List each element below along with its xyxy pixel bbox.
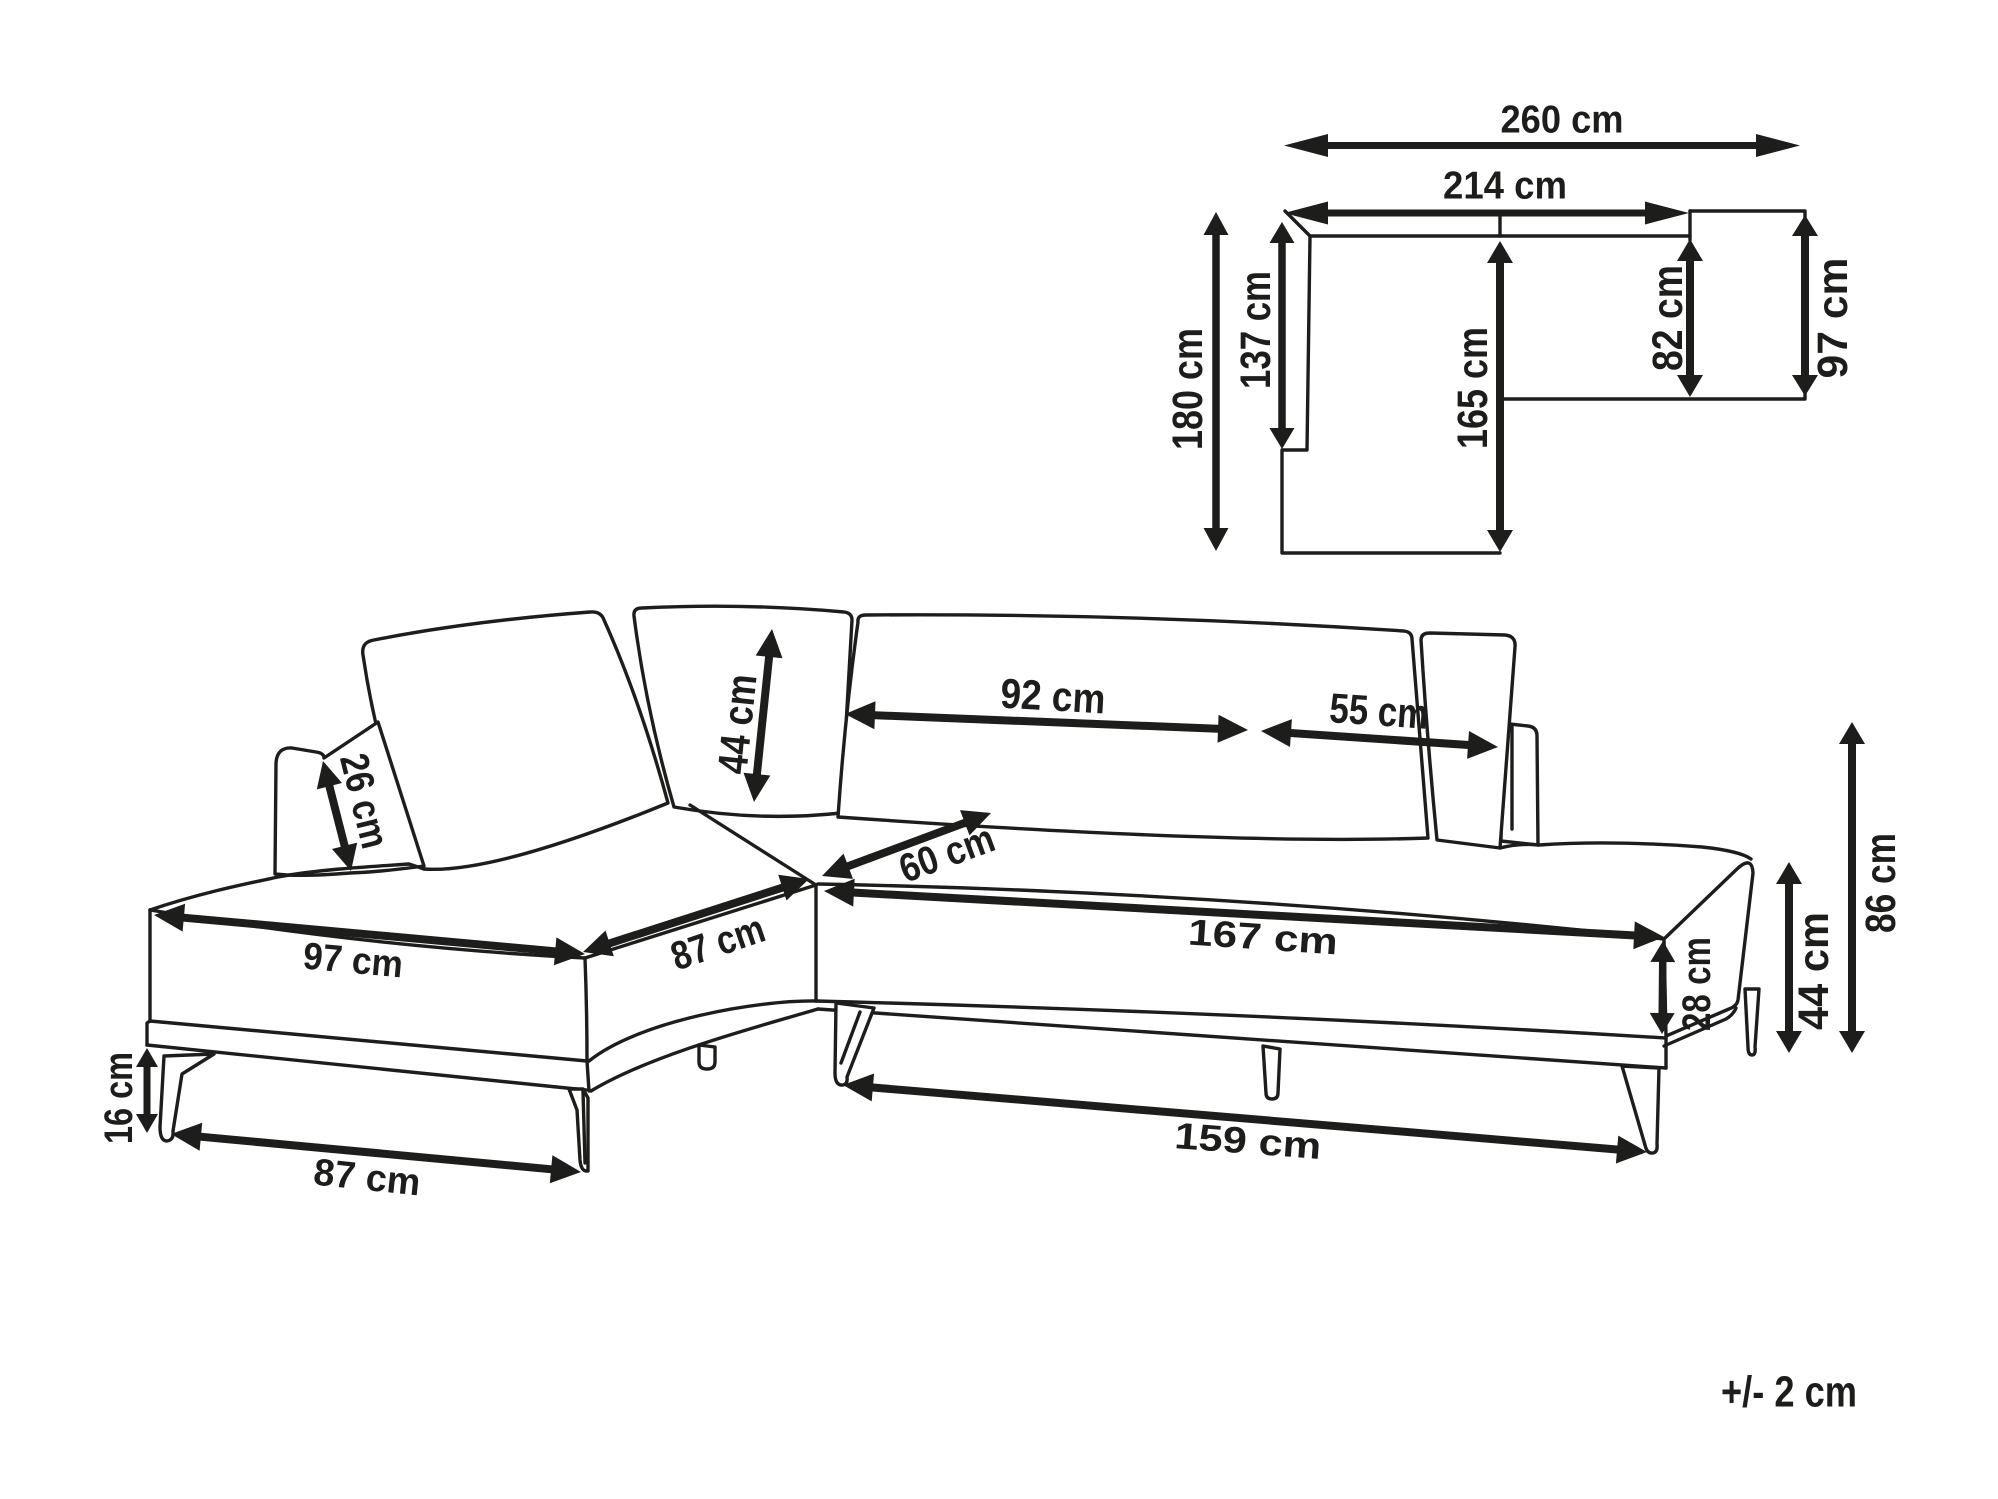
svg-text:44 cm: 44 cm <box>1790 912 1838 1030</box>
svg-text:97 cm: 97 cm <box>1809 258 1857 379</box>
svg-text:55 cm: 55 cm <box>1328 684 1430 738</box>
svg-text:214 cm: 214 cm <box>1443 165 1567 208</box>
svg-text:+/- 2 cm: +/- 2 cm <box>1721 1368 1857 1417</box>
svg-text:86 cm: 86 cm <box>1857 833 1905 933</box>
svg-text:165 cm: 165 cm <box>1449 327 1497 449</box>
svg-text:82 cm: 82 cm <box>1644 265 1692 371</box>
svg-text:180 cm: 180 cm <box>1164 328 1212 450</box>
svg-text:16 cm: 16 cm <box>97 1052 141 1144</box>
svg-text:137 cm: 137 cm <box>1232 271 1280 389</box>
svg-text:92 cm: 92 cm <box>999 670 1107 723</box>
svg-text:28 cm: 28 cm <box>1675 937 1719 1031</box>
svg-text:260 cm: 260 cm <box>1501 99 1624 142</box>
